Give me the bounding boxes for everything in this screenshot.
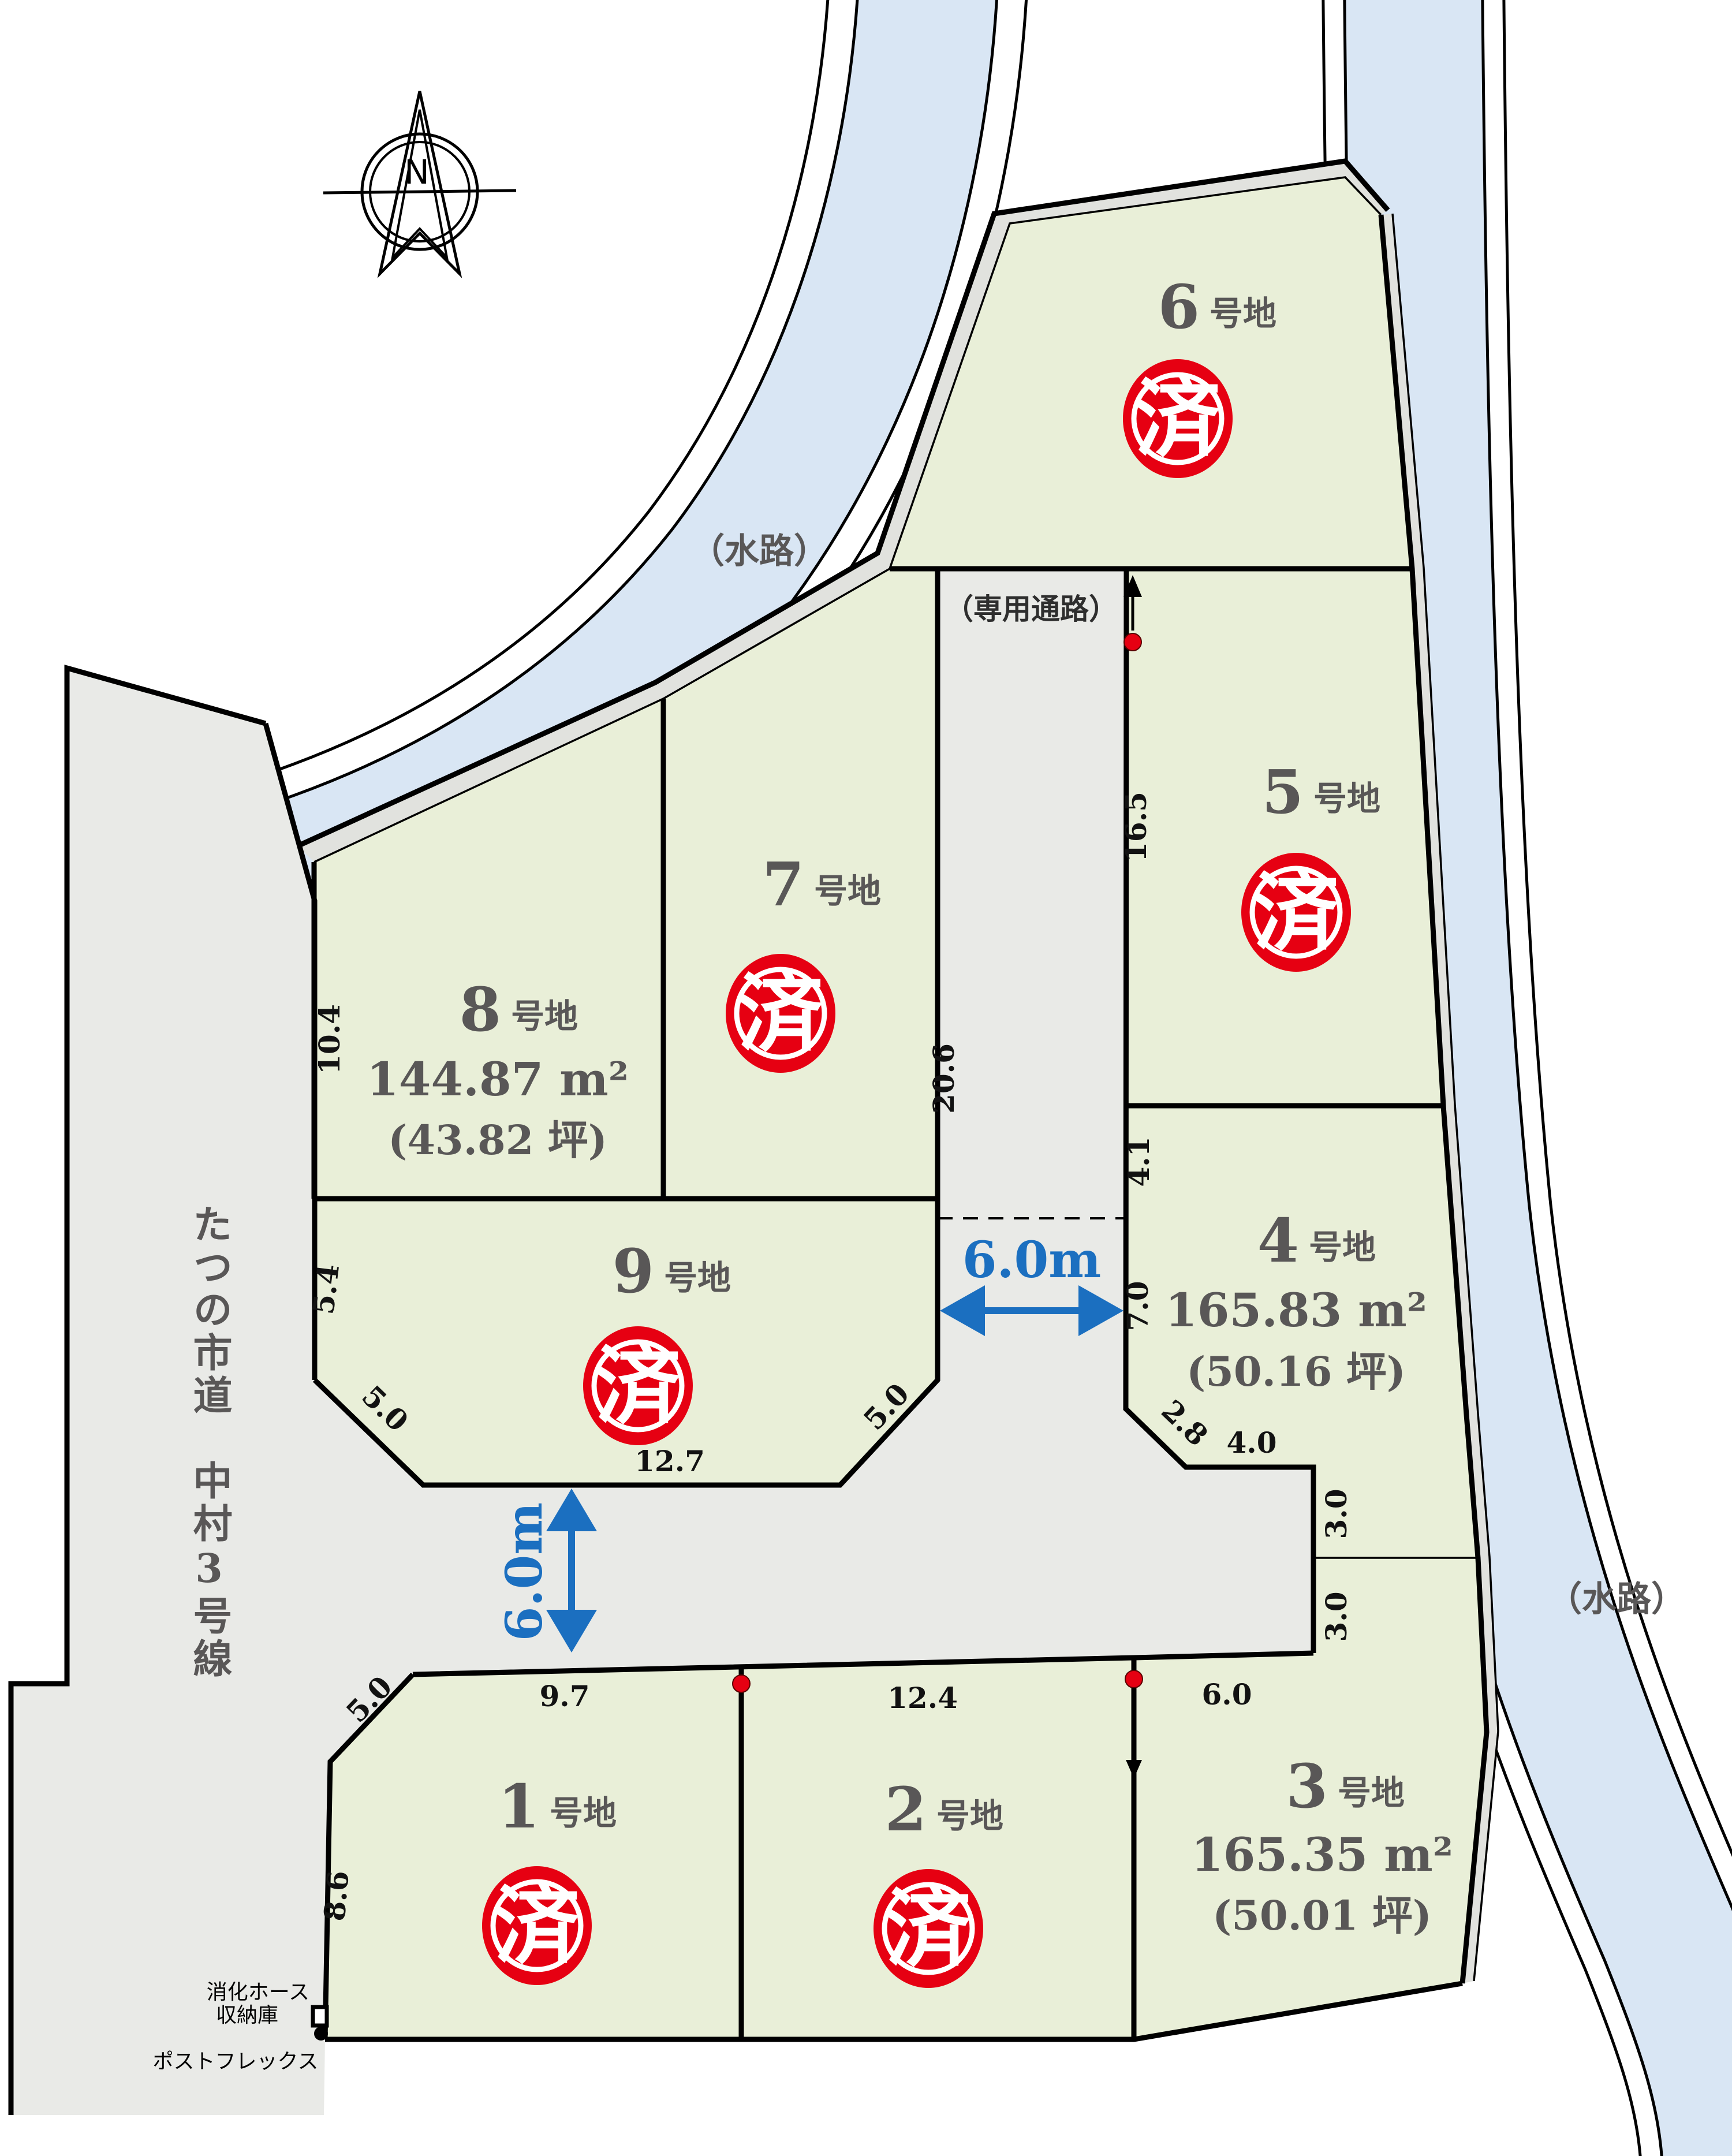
site-plan-page: N （水路） （水路） （専用通路） たつの市道 中村3号線 1 号地 2 号地… [0,0,1732,2156]
svg-text:3.0: 3.0 [1319,1489,1353,1539]
svg-text:3: 3 [1286,1751,1328,1822]
svg-text:消化ホース: 消化ホース [207,1980,309,2004]
svg-text:20.6: 20.6 [927,1043,961,1114]
svg-text:8.6: 8.6 [317,1870,355,1923]
corridor-label: （専用通路） [945,592,1118,626]
svg-text:(50.01 坪): (50.01 坪) [1212,1892,1432,1939]
svg-text:165.35 m²: 165.35 m² [1191,1827,1453,1882]
svg-text:6: 6 [1158,271,1200,342]
sold-stamp-lot-9: 済 [583,1326,693,1445]
sold-stamp-lot-7: 済 [726,954,835,1073]
svg-text:収納庫: 収納庫 [216,2004,278,2027]
svg-text:6.0: 6.0 [1202,1677,1252,1711]
svg-text:ポストフレックス: ポストフレックス [153,2050,319,2073]
svg-text:号地: 号地 [1313,779,1380,818]
svg-text:4.1: 4.1 [1122,1137,1156,1187]
svg-text:済: 済 [738,963,824,1064]
svg-text:5.4: 5.4 [306,1262,346,1316]
sold-stamp-lot-6: 済 [1123,359,1233,478]
svg-text:9: 9 [613,1236,654,1307]
sold-stamp-lot-5: 済 [1241,853,1351,972]
svg-text:4.0: 4.0 [1227,1426,1277,1460]
svg-text:6.0m: 6.0m [962,1231,1102,1289]
compass-north-label: N [404,152,429,192]
svg-text:12.4: 12.4 [887,1681,958,1715]
svg-text:4: 4 [1257,1205,1299,1276]
svg-text:1: 1 [498,1771,540,1842]
svg-text:5: 5 [1262,756,1304,827]
lot-5-parcel [1126,569,1443,1106]
waterway-left-label: （水路） [690,531,828,572]
compass-rose: N [323,91,516,274]
post-flex-dot-icon [314,2027,328,2041]
svg-text:2: 2 [885,1774,927,1845]
svg-text:済: 済 [886,1878,972,1979]
svg-text:号地: 号地 [664,1258,731,1297]
svg-text:3.0: 3.0 [1319,1592,1353,1642]
svg-text:(50.16 坪): (50.16 坪) [1186,1348,1406,1396]
svg-text:済: 済 [1253,862,1339,963]
svg-text:号地: 号地 [1210,294,1276,333]
fire-hose-box-icon [313,2007,327,2026]
svg-text:6.0m: 6.0m [495,1502,554,1642]
svg-text:7.0: 7.0 [1121,1281,1155,1331]
svg-text:10.4: 10.4 [312,1004,346,1075]
waterway-right-label: （水路） [1547,1579,1686,1620]
svg-text:号地: 号地 [511,997,578,1036]
private-corridor-surface [938,569,1126,1218]
svg-text:9.7: 9.7 [540,1679,590,1713]
sold-stamp-lot-1: 済 [482,1866,592,1985]
svg-text:済: 済 [494,1875,580,1976]
svg-text:8: 8 [460,974,501,1045]
svg-text:号地: 号地 [1309,1228,1376,1267]
site-plan-map: N （水路） （水路） （専用通路） たつの市道 中村3号線 1 号地 2 号地… [0,0,1732,2156]
svg-text:16.5: 16.5 [1119,792,1153,862]
svg-text:号地: 号地 [936,1796,1003,1836]
svg-text:済: 済 [595,1336,681,1436]
svg-text:号地: 号地 [1338,1773,1405,1812]
svg-text:7: 7 [763,849,804,920]
svg-text:済: 済 [1135,368,1221,469]
city-road-name: たつの市道 中村3号線 [186,1204,232,1681]
svg-text:165.83 m²: 165.83 m² [1165,1283,1427,1337]
marker-dot-lot1-lot2 [733,1675,750,1692]
svg-text:号地: 号地 [550,1793,617,1833]
svg-text:(43.82 坪): (43.82 坪) [388,1116,607,1164]
svg-text:12.7: 12.7 [634,1444,705,1478]
svg-text:144.87 m²: 144.87 m² [367,1052,629,1106]
svg-text:号地: 号地 [814,871,881,911]
sold-stamp-lot-2: 済 [874,1869,983,1988]
